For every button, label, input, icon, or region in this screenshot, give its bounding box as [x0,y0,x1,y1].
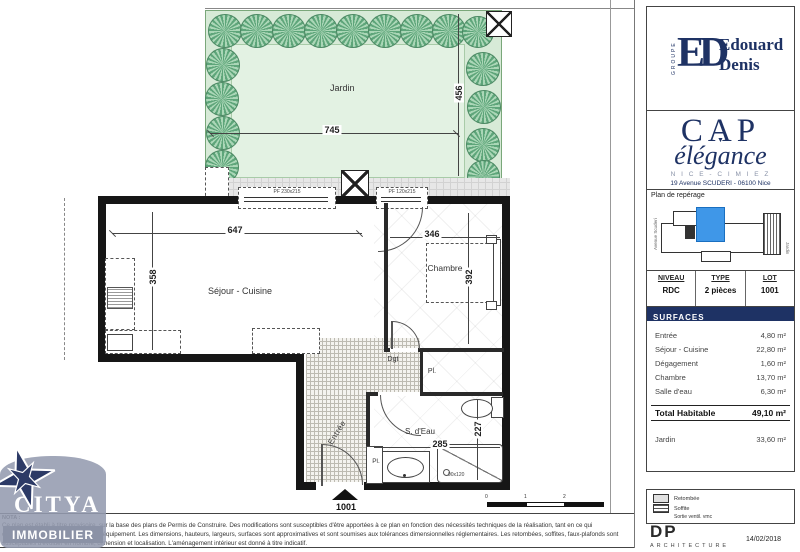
program-logo-box: CAP ▼ élégance N I C E - C I M I E Z 19 … [646,110,795,192]
scale-segment [487,502,526,507]
map-hatched-block [763,213,781,255]
tree-icon [336,14,370,48]
dim-line-346 [390,237,500,238]
tree-icon [240,14,274,48]
tree-icon [205,82,239,116]
glazing-line [244,197,328,202]
site-boundary-top [205,8,634,9]
surface-total-row: Total Habitable 49,10 m² [651,405,790,421]
dim-label-285: 285 [430,439,449,449]
placard-2-label: Pl. [368,458,384,465]
col-value: RDC [647,286,695,295]
shower-size-label: 90x120 [448,472,464,478]
surface-row: Entrée 4,80 m² [647,331,794,340]
dim-label-392: 392 [464,267,474,286]
plan-date: 14/02/2018 [746,536,781,543]
window-label: PF 230x215 [239,189,335,195]
surface-label: Chambre [655,373,686,382]
sejour-label: Séjour - Cuisine [175,286,305,296]
surfaces-title: SURFACES [653,313,705,322]
utility-box-icon [486,11,512,37]
developer-monogram: ED [677,29,723,77]
wall-mid-vertical [296,354,304,490]
tree-icon [466,128,500,162]
legend-label: Sortie ventil. vmc [674,514,712,520]
tree-icon [208,14,242,48]
dim-label-745: 745 [322,125,341,135]
tree-icon [432,14,466,48]
wall-right [502,196,510,490]
map-lot-highlight [696,207,725,242]
scale-tick-2: 2 [563,494,566,500]
jardin-label: Jardin [655,435,675,444]
tree-icon [206,48,240,82]
lot-table-col-niveau: NIVEAU RDC [647,271,696,308]
partition-chambre-left [384,203,388,352]
scale-tick-1: 1 [524,494,527,500]
tree-icon [467,90,501,124]
developer-logo-box: GROUPE ED Edouard Denis [646,6,795,113]
lot-table-col-type: TYPE 2 pièces [696,271,745,308]
sheet-divider-vline [634,0,635,548]
lot-number-marker: 1001 [328,502,364,512]
location-map-title: Plan de repérage [651,192,705,199]
dim-label-456: 456 [454,83,464,102]
kitchen-sink [107,287,133,309]
window-label: PF 120x215 [377,189,427,195]
kitchen-island [252,328,320,354]
surface-value: 4,80 m² [761,331,786,340]
surface-label: Séjour - Cuisine [655,345,708,354]
bed [426,243,498,303]
scale-tick-0: 0 [485,494,488,500]
map-annex [701,251,731,262]
garden-label: Jardin [330,83,355,93]
surface-value: 1,60 m² [761,359,786,368]
col-header: LOT [746,275,794,282]
architect-logo: DP ARCHITECTURE [650,522,729,549]
surface-row: Séjour - Cuisine 22,80 m² [647,345,794,354]
program-location: N I C E - C I M I E Z [647,171,794,178]
total-value: 49,10 m² [752,408,786,418]
site-boundary-dashed-left [64,198,65,360]
surface-value: 6,30 m² [761,387,786,396]
surface-value: 22,80 m² [756,345,786,354]
map-garden-label: Jardin [785,242,790,254]
surface-row: Dégagement 1,60 m² [647,359,794,368]
map-street-label: Avenue Scuderi [653,218,658,250]
surface-jardin-row: Jardin 33,60 m² [647,435,794,444]
surfaces-header: SURFACES [647,307,794,321]
scale-bar: 0 1 2 [487,502,604,508]
soffite-swatch [653,504,669,513]
map-stairwell [685,225,695,239]
floor-plan-sheet: Jardin 745 456 PF 230x215 PF 120x215 [0,0,800,552]
location-map-box: Plan de repérage Avenue Scuderi Jardin [646,189,795,273]
legend-item: Sortie ventil. vmc [674,514,712,520]
agency-subtitle: IMMOBILIER [12,528,94,542]
scale-segment [526,502,565,507]
scale-segment [565,502,604,507]
dim-label-647: 647 [225,225,244,235]
legend-label: Soffite [674,506,690,512]
washbasin-drain [403,474,406,477]
architect-subtitle: ARCHITECTURE [650,543,729,549]
dim-label-227: 227 [473,419,483,438]
surfaces-box: SURFACES Entrée 4,80 m² Séjour - Cuisine… [646,306,795,472]
col-header: NIVEAU [647,275,695,282]
retombee-swatch [653,494,669,503]
surface-value: 13,70 m² [756,373,786,382]
tree-icon [272,14,306,48]
plan-frame-vline [610,0,611,513]
developer-name-line1: Edouard [719,35,783,55]
garden-lawn [231,44,465,178]
total-label: Total Habitable [655,408,715,418]
legend-label: Retombée [674,496,699,502]
placard-1-label: Pl. [422,368,442,375]
dim-label-346: 346 [422,229,441,239]
program-address: 19 Avenue SCUDERI - 06100 Nice [647,180,794,187]
dim-label-358: 358 [148,267,158,286]
col-value: 1001 [746,286,794,295]
entrance-triangle-marker [332,489,358,500]
legend-item: Soffite [653,504,690,513]
plan-legend-box: Retombée Soffite Sortie ventil. vmc [646,489,795,524]
dgt-label: Dgt [378,356,408,363]
dim-line-227 [477,400,478,480]
agency-subtitle-strip: IMMOBILIER [3,526,103,543]
program-name-script: élégance [647,141,794,171]
jardin-value: 33,60 m² [756,435,786,444]
col-value: 2 pièces [696,286,744,295]
legend-item: Retombée [653,494,699,503]
surface-label: Entrée [655,331,677,340]
surface-label: Dégagement [655,359,698,368]
lot-table: NIVEAU RDC TYPE 2 pièces LOT 1001 [646,270,795,309]
nightstand [486,301,497,310]
placard-2-box [366,446,383,484]
tree-icon [304,14,338,48]
surface-row: Salle d'eau 6,30 m² [647,387,794,396]
window-porte-fenetre-1: PF 230x215 [238,187,336,209]
bed-headboard [493,239,501,306]
sdeau-label: S. d'Eau [390,427,450,436]
architect-name: DP [650,522,729,542]
glazing-line [381,197,421,202]
tree-icon [368,14,402,48]
surface-label: Salle d'eau [655,387,692,396]
col-header: TYPE [696,275,744,282]
tree-icon [466,52,500,86]
surface-row: Chambre 13,70 m² [647,373,794,382]
tree-icon [400,14,434,48]
utility-box-icon [341,170,369,198]
wall-sejour-bottom [98,354,304,362]
developer-name-line2: Denis [719,55,760,75]
kitchen-appliance [107,334,133,351]
lot-table-col-lot: LOT 1001 [746,271,794,308]
shower-tray [437,444,503,483]
